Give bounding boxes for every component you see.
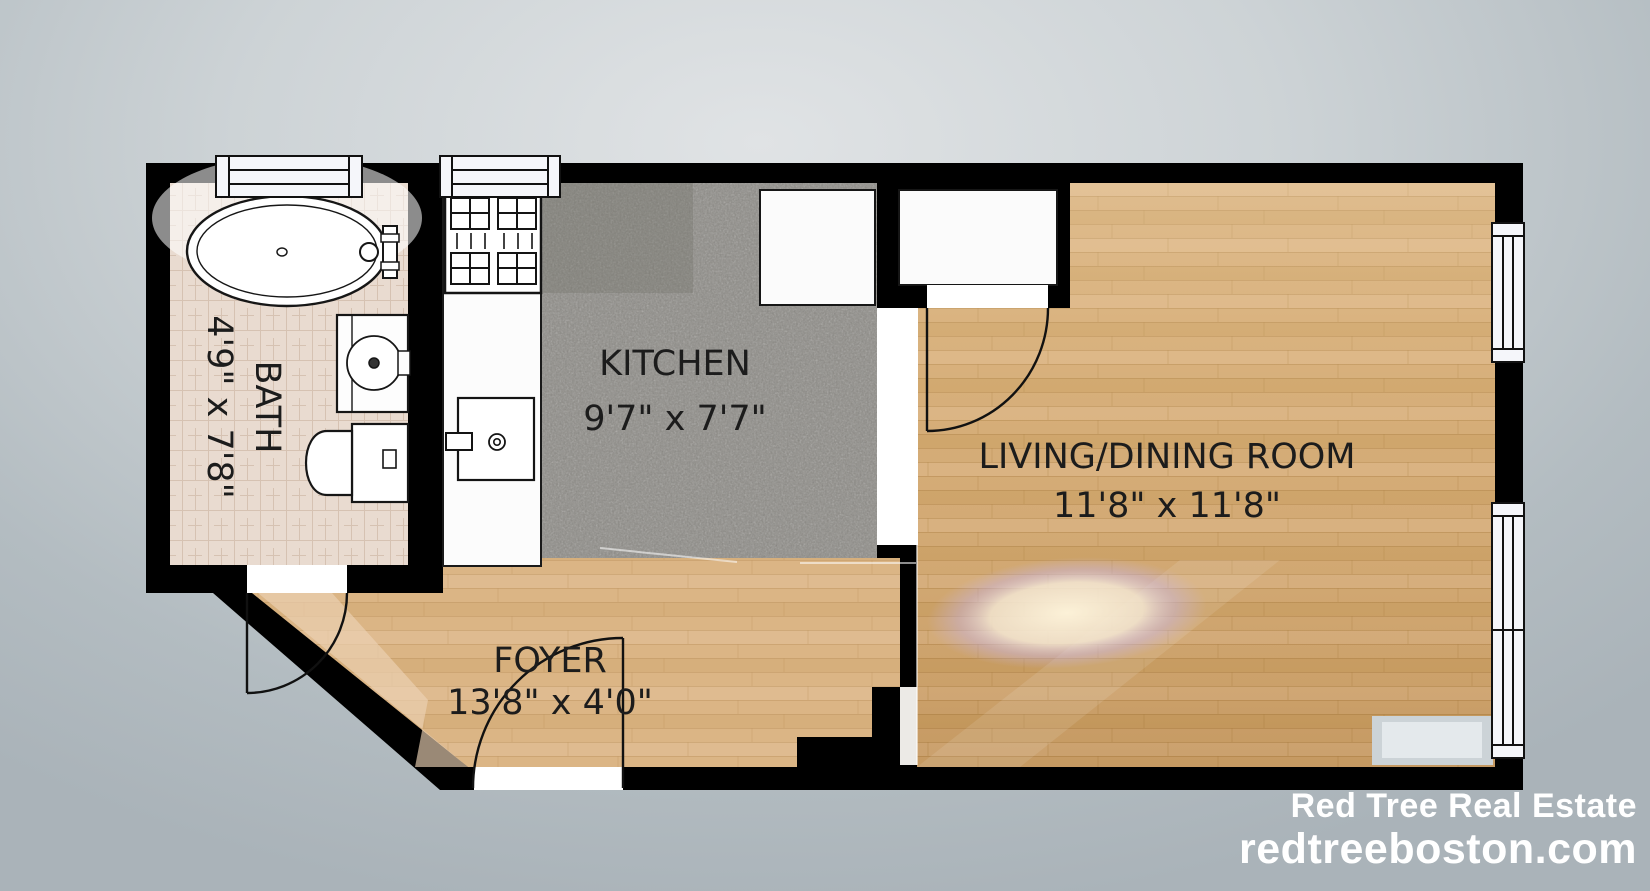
kitchen-room-name: KITCHEN bbox=[599, 344, 751, 384]
refrigerator bbox=[760, 190, 875, 305]
floor-plan-drawing: BATH 4'9" x 7'8" KITCHEN 9'7" x 7'7" LIV… bbox=[0, 0, 1650, 891]
wall-step bbox=[797, 737, 900, 790]
foyer-room-name: FOYER bbox=[493, 641, 607, 681]
closet bbox=[899, 190, 1057, 285]
toilet-icon bbox=[306, 424, 408, 502]
living-room-dims: 11'8" x 11'8" bbox=[1053, 486, 1281, 526]
floor-plan-page: BATH 4'9" x 7'8" KITCHEN 9'7" x 7'7" LIV… bbox=[0, 0, 1650, 891]
watermark: Red Tree Real Estate redtreeboston.com bbox=[1239, 787, 1637, 873]
window-icon-kitchen bbox=[440, 156, 560, 197]
bath-door-opening bbox=[247, 565, 347, 593]
foyer-room-dims: 13'8" x 4'0" bbox=[447, 683, 653, 723]
watermark-website: redtreeboston.com bbox=[1239, 825, 1637, 873]
window-icon-living-upper bbox=[1492, 223, 1524, 362]
threshold-sliver bbox=[900, 687, 917, 765]
passage-opening bbox=[877, 308, 918, 545]
entry-door-opening bbox=[474, 767, 623, 790]
bath-vanity-icon bbox=[337, 315, 410, 412]
radiator bbox=[1372, 716, 1493, 765]
bath-room-name: BATH bbox=[247, 361, 287, 454]
bath-room-dims: 4'9" x 7'8" bbox=[199, 315, 239, 498]
kitchen-room-dims: 9'7" x 7'7" bbox=[583, 399, 766, 439]
closet-door-opening bbox=[927, 285, 1048, 308]
window-icon-living-lower bbox=[1492, 503, 1524, 758]
kitchen-sink-icon bbox=[446, 398, 534, 480]
window-icon-bath bbox=[216, 156, 362, 197]
living-room-name: LIVING/DINING ROOM bbox=[978, 437, 1355, 477]
range-icon bbox=[445, 192, 541, 293]
watermark-company: Red Tree Real Estate bbox=[1239, 787, 1637, 825]
